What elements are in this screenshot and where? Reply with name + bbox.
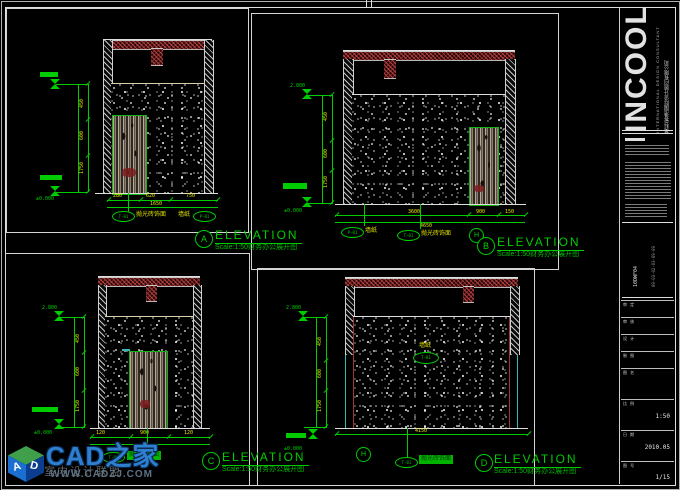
dim-value: 600	[324, 142, 330, 158]
floor-line	[335, 428, 528, 429]
axis-letter: H	[361, 451, 366, 458]
detail-accent	[122, 349, 130, 351]
level-marker-icon	[54, 311, 64, 321]
fold-mark	[366, 0, 367, 8]
dim-line	[332, 95, 333, 204]
notes-heading-bar	[625, 138, 645, 141]
material-label: 墙纸	[365, 228, 377, 234]
field-label: 设 计	[623, 337, 635, 341]
dim-value: 1750	[318, 396, 324, 412]
company-name-cn: 英科(香港)国际设计顾问有限公司	[665, 15, 673, 133]
elevation-title: ELEVATION	[497, 236, 584, 251]
dim-line	[84, 317, 85, 428]
elevation-bubble: A	[195, 230, 213, 248]
elevation-scale: Scale:1:50财务办公展开图	[215, 244, 297, 251]
door-panel	[469, 127, 499, 206]
field-value: 1/15	[656, 475, 670, 481]
column-hatch	[204, 40, 214, 193]
dim-value: 4150	[415, 429, 427, 434]
field-row: 日 期2010.05	[621, 430, 674, 461]
elevation-scale: Scale:1:50财务办公展开图	[222, 466, 304, 473]
field-row: 图 名	[621, 368, 674, 399]
elevation-bubble: C	[202, 452, 220, 470]
material-tag: P-01	[341, 227, 364, 238]
floor-line	[90, 428, 210, 429]
dim-total: 1650	[150, 202, 162, 207]
field-label: 制 图	[623, 354, 635, 358]
title-block-fields: 审 定 审 核 设 计 制 图 图 名 比 例1:50 日 期2010.05 图…	[621, 300, 674, 484]
ceiling-hatch-notch	[146, 285, 157, 302]
wall-edge-line	[517, 355, 518, 428]
dim-value: 450	[324, 105, 330, 121]
ceiling-hatch-band	[343, 51, 515, 61]
leader-line	[407, 428, 408, 458]
material-tag: P-01	[193, 211, 216, 222]
dim-line	[335, 434, 528, 435]
field-row: 制 图	[621, 351, 674, 368]
dim-value: 450	[318, 330, 324, 346]
field-label: 比 例	[623, 402, 635, 406]
door-red-detail	[474, 185, 484, 192]
dim-value: 120	[96, 431, 105, 436]
column-hatch	[193, 285, 202, 428]
level-label-bar	[40, 72, 58, 77]
level-label-bar	[283, 183, 307, 189]
material-tag: T-01	[395, 457, 418, 468]
field-label: 图 名	[623, 371, 635, 375]
dim-value: 450	[76, 327, 82, 343]
level-marker-icon	[54, 419, 64, 429]
notes-text-block	[625, 204, 667, 218]
divider	[622, 130, 673, 131]
elevation-scale: Scale:1:50财务办公展开图	[494, 468, 576, 475]
elevation-bubble: D	[475, 454, 493, 472]
title-block: INCOOL INTERNATIONAL DESIGN CONSULTANT 英…	[619, 7, 675, 484]
leader-line	[128, 193, 129, 212]
material-label: 墙纸	[178, 212, 190, 218]
project-code: 10DWF04	[634, 227, 642, 287]
door-panel	[112, 115, 147, 195]
level-value: ±0.000	[34, 431, 52, 436]
field-row: 图 号1/15	[621, 461, 674, 490]
elevation-letter: C	[208, 456, 215, 466]
dim-line	[90, 437, 210, 438]
dim-line	[88, 84, 89, 192]
dim-value: 150	[505, 210, 514, 215]
dim-line	[107, 207, 218, 208]
watermark-brand: CAD之家	[46, 443, 159, 469]
divider	[622, 133, 673, 134]
elevation-title: ELEVATION	[494, 453, 581, 468]
dim-line	[56, 192, 88, 193]
dim-value: 600	[80, 124, 86, 140]
dim-value: 900	[476, 210, 485, 215]
dim-value: 1750	[80, 158, 86, 174]
material-tag: T-01	[397, 230, 420, 241]
fold-mark	[371, 0, 372, 8]
field-label: 审 核	[623, 320, 635, 324]
field-row: 比 例1:50	[621, 399, 674, 430]
notes-text-block	[625, 162, 671, 200]
dim-total: 4650	[420, 224, 432, 229]
wall-inner-line	[509, 317, 510, 428]
level-marker-icon	[302, 197, 312, 207]
ceiling-hatch-notch	[384, 59, 396, 79]
axis-letter: H	[474, 232, 479, 239]
level-marker-icon	[308, 429, 318, 439]
dim-value: 600	[76, 360, 82, 376]
company-logo-subtitle: INTERNATIONAL DESIGN CONSULTANT	[656, 15, 663, 133]
dim-value: 450	[80, 92, 86, 108]
elevation-letter: D	[481, 458, 488, 468]
level-value: ±0.000	[36, 197, 54, 202]
door-red-detail	[140, 400, 150, 408]
field-row: 审 定	[621, 300, 674, 317]
dim-value: 120	[184, 431, 193, 436]
dim-line	[326, 317, 327, 428]
dim-value: 1750	[76, 396, 82, 412]
field-label: 审 定	[623, 303, 635, 307]
door-panel	[129, 351, 168, 429]
dim-value: 280	[113, 194, 122, 199]
door-red-detail	[122, 168, 136, 177]
leader-line	[420, 204, 421, 229]
level-label-bar	[32, 407, 58, 412]
field-label: 日 期	[623, 433, 635, 437]
field-label: 图 号	[623, 464, 635, 468]
level-value: ±0.000	[284, 447, 302, 452]
material-label: 墙纸	[419, 343, 431, 349]
axis-bubble: H	[356, 447, 371, 462]
level-value: ±0.000	[284, 209, 302, 214]
watermark-url: WWW.CADZJ.COM	[50, 470, 153, 480]
material-label: 抛光砖饰面	[136, 212, 166, 218]
dim-line	[107, 200, 218, 201]
level-marker-icon	[302, 89, 312, 99]
leader-line	[364, 204, 365, 226]
dim-value: 3600	[408, 210, 420, 215]
ceiling-hatch-band	[345, 278, 518, 288]
material-label: 抛光砖饰面	[421, 231, 451, 237]
divider	[622, 222, 673, 223]
notes-text-block	[625, 145, 669, 157]
material-tag: T-01	[413, 352, 439, 364]
watermark: A D 室内设计联盟 CAD之家 WWW.CADZJ.COM	[4, 443, 204, 489]
wall-edge-line	[345, 355, 346, 428]
material-tag: T-01	[112, 211, 135, 222]
company-logo: INCOOL	[622, 13, 656, 133]
cad-cube-logo: A D	[6, 446, 48, 486]
field-value: 2010.05	[645, 445, 670, 451]
cad-drawing-sheet: 450 600 1750 ±0.000 280 620 750 1650 T-0…	[0, 0, 680, 490]
field-value: 1:50	[656, 414, 670, 420]
level-label-bar	[286, 433, 306, 438]
elevation-title: ELEVATION	[222, 451, 309, 466]
level-label-bar	[40, 175, 62, 180]
ceiling-hatch-notch	[463, 286, 474, 303]
field-row: 设 计	[621, 334, 674, 351]
dim-value: 600	[318, 362, 324, 378]
index-code: 09-03-02-03-09-09	[652, 227, 659, 287]
material-label-highlighted: 抛光砖饰面	[419, 455, 453, 464]
ceiling-hatch-notch	[151, 48, 163, 66]
level-marker-icon	[50, 186, 60, 196]
dim-value: 620	[146, 194, 155, 199]
elevation-bubble: B	[477, 237, 495, 255]
level-marker-icon	[50, 79, 60, 89]
elevation-letter: A	[201, 234, 207, 244]
elevation-title: ELEVATION	[215, 229, 302, 244]
dim-value: 750	[186, 194, 195, 199]
wallpaper-texture	[354, 317, 509, 428]
divider	[622, 297, 673, 298]
field-row: 审 核	[621, 317, 674, 334]
column-hatch	[505, 59, 516, 204]
elevation-scale: Scale:1:50财务办公展开图	[497, 251, 579, 258]
dim-line	[56, 84, 88, 85]
dim-value: 1750	[324, 172, 330, 188]
column-hatch	[510, 286, 520, 355]
level-marker-icon	[298, 311, 308, 321]
elevation-letter: B	[483, 241, 489, 251]
